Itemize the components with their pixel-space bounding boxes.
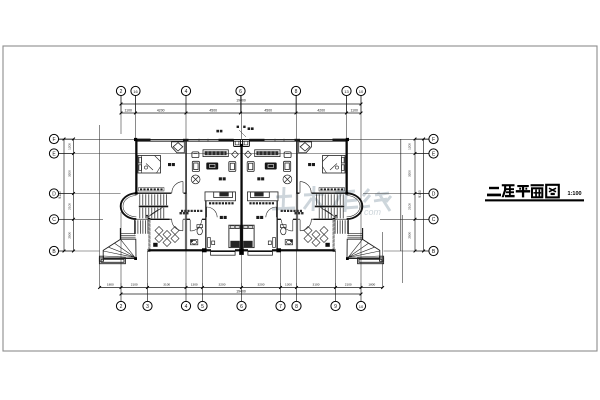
svg-text:C: C <box>432 217 436 223</box>
svg-text:8: 8 <box>295 304 298 310</box>
svg-text:6: 6 <box>239 89 242 95</box>
svg-text:1800: 1800 <box>368 283 375 287</box>
svg-text:4500: 4500 <box>264 108 272 112</box>
svg-text:3200: 3200 <box>68 170 72 177</box>
svg-text:1800: 1800 <box>107 283 114 287</box>
svg-text:13: 13 <box>344 89 349 94</box>
svg-text:6: 6 <box>240 304 243 310</box>
svg-text:2100: 2100 <box>345 283 352 287</box>
svg-text:9: 9 <box>334 304 337 310</box>
svg-text:16: 16 <box>133 89 138 94</box>
svg-text:2100: 2100 <box>68 203 72 210</box>
svg-text:2500: 2500 <box>408 231 412 238</box>
svg-text:4200: 4200 <box>317 108 325 112</box>
svg-text:3100: 3100 <box>163 283 170 287</box>
svg-text:1200: 1200 <box>68 143 72 150</box>
svg-text:3: 3 <box>146 304 149 310</box>
svg-text:C: C <box>52 217 56 223</box>
svg-text:2500: 2500 <box>68 231 72 238</box>
svg-text:1100: 1100 <box>351 108 358 112</box>
svg-text:8: 8 <box>295 89 298 95</box>
svg-text:D: D <box>432 191 436 197</box>
svg-text:10: 10 <box>359 304 364 309</box>
svg-text:5: 5 <box>201 304 204 310</box>
svg-text:2100: 2100 <box>408 203 412 210</box>
svg-text:F: F <box>52 137 55 143</box>
svg-text:D: D <box>52 191 56 197</box>
svg-text:1200: 1200 <box>408 143 412 150</box>
svg-text:F: F <box>432 137 435 143</box>
svg-text:3100: 3100 <box>313 283 320 287</box>
svg-text:2: 2 <box>120 89 123 95</box>
svg-text:2: 2 <box>120 304 123 310</box>
svg-text:7: 7 <box>279 304 282 310</box>
svg-text:1300: 1300 <box>285 283 292 287</box>
svg-text:4500: 4500 <box>209 108 217 112</box>
svg-text:1:100: 1:100 <box>568 191 582 197</box>
svg-text:10: 10 <box>359 89 364 94</box>
svg-text:4: 4 <box>185 89 188 95</box>
svg-text:3200: 3200 <box>408 170 412 177</box>
svg-text:3200: 3200 <box>258 283 265 287</box>
svg-text:3200: 3200 <box>219 283 226 287</box>
svg-text:4: 4 <box>185 304 188 310</box>
svg-text:1100: 1100 <box>125 108 132 112</box>
svg-text:4200: 4200 <box>157 108 165 112</box>
svg-text:9100: 9100 <box>418 190 422 198</box>
svg-text:com: com <box>364 207 382 217</box>
svg-text:19400: 19400 <box>236 289 246 293</box>
svg-text:1300: 1300 <box>191 283 198 287</box>
svg-text:19400: 19400 <box>236 99 246 103</box>
svg-text:2100: 2100 <box>131 283 138 287</box>
